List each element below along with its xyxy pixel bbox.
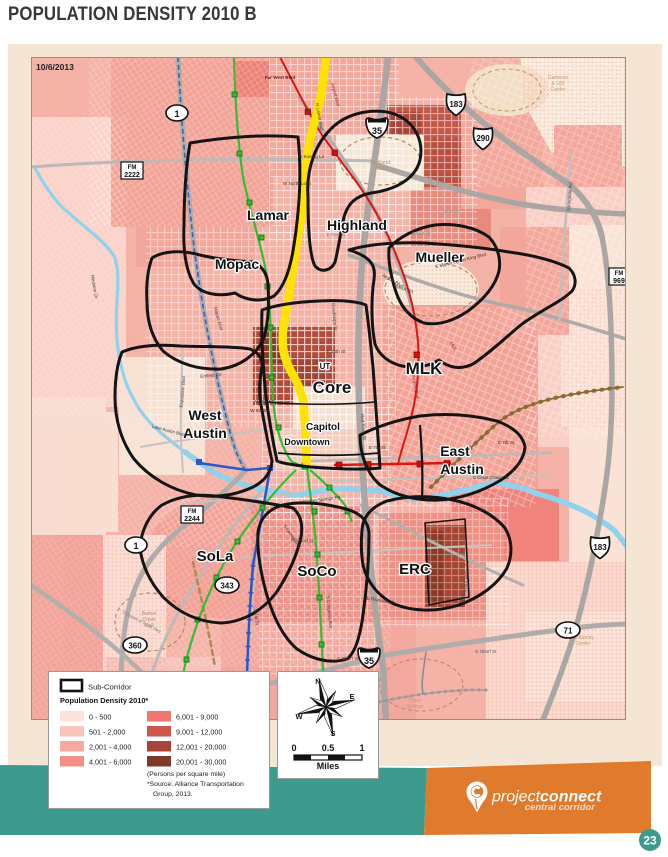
svg-text:East: East <box>440 443 470 459</box>
svg-text:Mall: Mall <box>144 623 153 629</box>
svg-text:E 7th St: E 7th St <box>369 445 386 450</box>
svg-text:FM: FM <box>188 509 197 515</box>
svg-text:Mall: Mall <box>375 166 384 172</box>
svg-text:FM: FM <box>128 165 137 171</box>
svg-text:9,001 - 12,000: 9,001 - 12,000 <box>176 728 222 737</box>
svg-text:Mopac: Mopac <box>215 256 260 272</box>
svg-text:Miles: Miles <box>317 761 340 771</box>
svg-text:4,001 - 6,000: 4,001 - 6,000 <box>89 758 131 767</box>
svg-text:ERC: ERC <box>399 561 431 578</box>
svg-text:Downtown: Downtown <box>284 437 330 447</box>
svg-text:20,001 - 30,000: 20,001 - 30,000 <box>176 758 226 767</box>
svg-text:Lamar: Lamar <box>247 207 290 223</box>
svg-text:0: 0 <box>291 743 296 753</box>
svg-text:2244: 2244 <box>184 516 200 523</box>
svg-text:E 51st St: E 51st St <box>412 231 431 236</box>
svg-text:Center: Center <box>575 641 590 647</box>
svg-text:Sub-Corridor: Sub-Corridor <box>88 683 132 692</box>
svg-text:(Persons per square mile): (Persons per square mile) <box>147 771 225 778</box>
svg-text:6,001 - 9,000: 6,001 - 9,000 <box>176 713 218 722</box>
svg-text:N: N <box>315 677 320 686</box>
svg-text:West: West <box>188 407 222 423</box>
svg-text:183: 183 <box>593 543 607 552</box>
svg-text:71: 71 <box>564 627 573 636</box>
svg-text:W North Loop: W North Loop <box>283 181 312 186</box>
svg-text:Core: Core <box>313 378 352 397</box>
svg-text:Capitol: Capitol <box>306 422 340 433</box>
svg-text:W Koenig Ln: W Koenig Ln <box>298 154 325 159</box>
svg-text:183: 183 <box>449 100 463 109</box>
svg-text:E Oltorf St: E Oltorf St <box>475 649 497 654</box>
svg-text:1: 1 <box>133 541 138 551</box>
svg-text:Highland: Highland <box>327 217 387 233</box>
svg-text:E Cesar Chavez St: E Cesar Chavez St <box>473 475 509 480</box>
svg-text:10/6/2013: 10/6/2013 <box>36 62 74 72</box>
svg-text:Center: Center <box>550 87 565 93</box>
svg-text:12,001 - 20,000: 12,001 - 20,000 <box>176 743 226 752</box>
svg-text:35: 35 <box>364 656 374 666</box>
svg-text:FM: FM <box>615 271 624 277</box>
svg-text:Mueller: Mueller <box>443 209 460 215</box>
svg-text:S: S <box>330 729 335 738</box>
svg-text:E: E <box>349 692 354 701</box>
svg-text:Springs: Springs <box>407 704 424 710</box>
svg-text:central corridor: central corridor <box>525 802 597 813</box>
svg-text:Population Density 2010*: Population Density 2010* <box>60 696 148 705</box>
svg-text:UT: UT <box>320 362 331 371</box>
svg-text:Austin: Austin <box>183 425 227 441</box>
svg-text:E 15th St: E 15th St <box>327 349 347 354</box>
svg-text:W: W <box>295 712 303 721</box>
svg-text:SoCo: SoCo <box>297 563 336 580</box>
svg-text:2,001 - 4,000: 2,001 - 4,000 <box>89 743 131 752</box>
svg-text:2222: 2222 <box>124 172 140 179</box>
svg-text:343: 343 <box>220 582 234 591</box>
svg-text:W 5th St: W 5th St <box>250 408 268 413</box>
svg-text:1: 1 <box>174 109 179 119</box>
svg-text:969: 969 <box>613 278 625 285</box>
svg-text:360: 360 <box>128 642 142 651</box>
svg-text:0 - 500: 0 - 500 <box>89 713 111 722</box>
svg-text:Far West Blvd: Far West Blvd <box>265 75 296 80</box>
svg-text:E 7th St: E 7th St <box>498 440 515 445</box>
svg-text:1: 1 <box>359 743 364 753</box>
svg-text:E 51st St: E 51st St <box>327 232 346 237</box>
svg-text:E Oltorf St: E Oltorf St <box>337 656 359 661</box>
svg-text:*Source: Alliance Transportati: *Source: Alliance Transportation <box>147 781 244 788</box>
svg-text:501 - 2,000: 501 - 2,000 <box>89 728 125 737</box>
svg-text:35: 35 <box>372 126 382 136</box>
svg-text:SoLa: SoLa <box>197 548 234 565</box>
svg-text:Group, 2013.: Group, 2013. <box>153 791 193 798</box>
svg-text:W 6th St: W 6th St <box>255 399 273 404</box>
svg-text:0.5: 0.5 <box>322 743 335 753</box>
svg-text:23: 23 <box>643 834 657 848</box>
svg-text:290: 290 <box>476 134 490 143</box>
